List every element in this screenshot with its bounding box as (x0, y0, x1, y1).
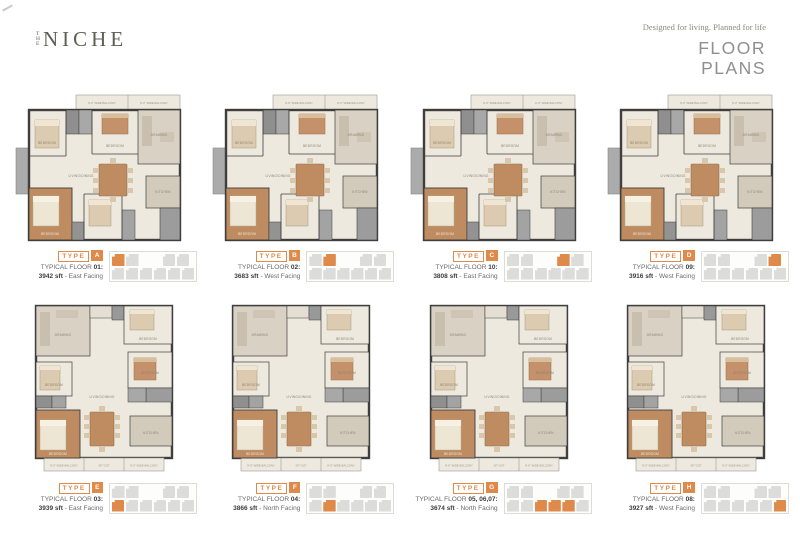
typical-floor-label: TYPICAL FLOOR (41, 264, 92, 271)
floorplan-svg: 9'-0" WIDE BALCONY 9'-0" WIDE BALCONY BE… (409, 92, 589, 248)
room-label: BEDROOM (436, 232, 454, 236)
separator: - (259, 505, 261, 512)
room-label: DRAWING (743, 133, 760, 137)
type-word-label: TYPE (59, 483, 90, 494)
floorplan-cell-type-e: 9'-0" WIDE BALCONY SIT OUT 9'-0" WIDE BA… (10, 300, 198, 514)
typical-floor-value: 02: (291, 264, 300, 271)
dress (644, 396, 658, 408)
typical-floor-value: 03: (94, 496, 103, 503)
typical-floor-label: TYPICAL FLOOR (41, 496, 92, 503)
room-label: BEDROOM (336, 337, 354, 341)
type-word-label: TYPE (650, 251, 681, 262)
key-unit (163, 486, 176, 498)
dining-table (682, 412, 706, 446)
room-label: DRAWING (545, 133, 562, 137)
floorplan-svg: 9'-0" WIDE BALCONY 9'-0" WIDE BALCONY BE… (211, 92, 391, 248)
key-unit (126, 254, 139, 266)
key-unit (177, 254, 190, 266)
floorplan-svg: 9'-0" WIDE BALCONY 9'-0" WIDE BALCONY BE… (14, 92, 194, 248)
balcony-label: 9'-0" WIDE BALCONY (337, 101, 365, 105)
typical-floor-label: TYPICAL FLOOR (238, 264, 289, 271)
floorplan-svg: 9'-0" WIDE BALCONY SIT OUT 9'-0" WIDE BA… (26, 300, 182, 480)
floorplan-caption: TYPE A TYPICAL FLOOR 01: 3942 sft - East… (10, 251, 198, 282)
room-label: BEDROOM (141, 371, 159, 375)
room-label: LIVING/DINING (463, 174, 488, 178)
key-row-top (704, 486, 786, 498)
balcony-label: 9'-0" WIDE BALCONY (247, 464, 275, 468)
room-label: KITCHEN (747, 190, 763, 194)
key-plan (306, 483, 394, 514)
room-label: KITCHEN (341, 431, 357, 435)
key-unit (374, 254, 387, 266)
sofa (648, 310, 670, 318)
balcony-label: 9'-0" WIDE BALCONY (642, 464, 670, 468)
key-plan (504, 251, 592, 282)
key-unit-highlighted (112, 500, 124, 512)
key-unit (760, 268, 772, 280)
floorplan-drawing: 9'-0" WIDE BALCONY 9'-0" WIDE BALCONY BE… (14, 92, 194, 248)
separator: - (459, 273, 461, 280)
room-label: BEDROOM (637, 383, 655, 387)
room-label: LIVING/DINING (287, 395, 312, 399)
dress (325, 388, 343, 402)
toilet (36, 396, 52, 408)
room-label: KITCHEN (538, 431, 554, 435)
area-facing-line: 3866 sft - North Facing (208, 504, 300, 513)
key-unit (507, 500, 519, 512)
key-row-bottom (704, 500, 786, 512)
typical-floor-label: TYPICAL FLOOR (633, 496, 684, 503)
room-label: KITCHEN (143, 431, 159, 435)
key-unit (718, 486, 731, 498)
room-label: BEDROOM (246, 452, 264, 456)
key-unit-highlighted (562, 500, 574, 512)
area-value: 3674 sft (430, 505, 454, 512)
area-facing-line: 3808 sft - East Facing (406, 272, 498, 281)
toilet (66, 110, 79, 134)
balcony-label: 9'-0" WIDE BALCONY (535, 101, 563, 105)
floorplan-cell-type-c: 9'-0" WIDE BALCONY 9'-0" WIDE BALCONY BE… (405, 92, 593, 282)
key-unit (126, 268, 138, 280)
room-label: KITCHEN (155, 190, 171, 194)
key-gap (535, 254, 556, 266)
floorplan-drawing: 9'-0" WIDE BALCONY 9'-0" WIDE BALCONY BE… (211, 92, 391, 248)
key-unit (732, 500, 744, 512)
type-letter-badge: E (92, 482, 103, 493)
sofa (537, 116, 547, 146)
balcony-label: 9'-0" WIDE BALCONY (732, 101, 760, 105)
facing-value: West Facing (264, 273, 300, 280)
key-unit (112, 268, 124, 280)
dining-table (494, 164, 522, 196)
key-plan (306, 251, 394, 282)
balcony-label: 9'-0" WIDE BALCONY (483, 101, 511, 105)
key-plan (109, 251, 197, 282)
sofa (339, 116, 349, 146)
typical-floor-value: 09: (686, 264, 695, 271)
sofa (40, 312, 50, 346)
toilet (146, 388, 172, 402)
floorplan-svg: 9'-0" WIDE BALCONY 9'-0" WIDE BALCONY BE… (606, 92, 786, 248)
type-badge: TYPE A (58, 251, 103, 262)
side-balcony (411, 148, 424, 194)
facing-value: East Facing (463, 273, 497, 280)
corner-mark (2, 5, 13, 12)
type-letter-badge: G (486, 482, 498, 493)
key-unit (182, 268, 194, 280)
key-unit-highlighted (548, 500, 560, 512)
toilet (319, 210, 332, 240)
room-label: DRAWING (348, 133, 365, 137)
key-unit (374, 486, 387, 498)
dress (447, 396, 461, 408)
side-balcony (213, 148, 226, 194)
key-unit (365, 268, 377, 280)
floorplan-cell-type-g: 9'-0" WIDE BALCONY SIT OUT 9'-0" WIDE BA… (405, 300, 593, 514)
key-unit (746, 268, 758, 280)
key-unit (309, 268, 321, 280)
facing-value: West Facing (659, 505, 695, 512)
key-gap (732, 254, 753, 266)
toilet (122, 210, 135, 240)
typical-floor-label: TYPICAL FLOOR (633, 264, 684, 271)
key-unit (140, 500, 152, 512)
key-unit (746, 500, 758, 512)
key-row-bottom (507, 268, 589, 280)
key-unit (365, 500, 377, 512)
room-label: BEDROOM (501, 144, 519, 148)
type-badge: TYPE B (256, 251, 301, 262)
key-unit (704, 500, 716, 512)
room-label: LIVING/DINING (681, 395, 706, 399)
dress (523, 388, 541, 402)
page-title-line1: FLOOR (643, 39, 766, 59)
utility (357, 208, 377, 240)
key-row-bottom (112, 500, 194, 512)
floorplan-caption: TYPE G TYPICAL FLOOR 05, 06,07: 3674 sft… (405, 483, 593, 514)
room-label: BEDROOM (338, 371, 356, 375)
utility (555, 208, 575, 240)
key-unit (521, 486, 534, 498)
type-word-label: TYPE (256, 483, 287, 494)
sofa (237, 312, 247, 346)
key-unit (140, 268, 152, 280)
key-unit (323, 486, 336, 498)
floorplan-drawing: 9'-0" WIDE BALCONY SIT OUT 9'-0" WIDE BA… (26, 300, 182, 480)
room-label: BEDROOM (731, 337, 749, 341)
sofa (253, 310, 275, 318)
key-unit (774, 268, 786, 280)
sitout-label: SIT OUT (99, 464, 110, 468)
toilet (72, 222, 84, 240)
floorplan-svg: 9'-0" WIDE BALCONY SIT OUT 9'-0" WIDE BA… (421, 300, 577, 480)
room-label: BEDROOM (630, 141, 648, 145)
key-unit (521, 500, 533, 512)
room-label: BEDROOM (106, 144, 124, 148)
foyer (90, 306, 112, 318)
key-unit (576, 268, 588, 280)
room-label: DRAWING (252, 333, 269, 337)
dining-table (691, 164, 719, 196)
toilet (467, 222, 479, 240)
key-unit (309, 486, 322, 498)
key-row-top (704, 254, 786, 266)
type-letter-badge: H (683, 482, 695, 493)
key-unit-highlighted (557, 254, 570, 266)
floorplan-caption: TYPE B TYPICAL FLOOR 02: 3683 sft - West… (207, 251, 395, 282)
floorplan-cell-type-a: 9'-0" WIDE BALCONY 9'-0" WIDE BALCONY BE… (10, 92, 198, 282)
key-unit (351, 500, 363, 512)
typical-floor-line: TYPICAL FLOOR 05, 06,07: (406, 495, 498, 504)
typical-floor-value: 08: (686, 496, 695, 503)
separator: - (655, 505, 657, 512)
separator: - (456, 505, 458, 512)
room-label: BEDROOM (641, 452, 659, 456)
key-unit (704, 254, 717, 266)
typical-floor-line: TYPICAL FLOOR 09: (603, 263, 695, 272)
toilet (309, 306, 321, 320)
key-unit (168, 268, 180, 280)
typical-floor-value: 04: (291, 496, 300, 503)
dining-table (485, 412, 509, 446)
brand-logo-the: THE (36, 32, 41, 48)
floorplan-caption: TYPE H TYPICAL FLOOR 08: 3927 sft - West… (602, 483, 790, 514)
typical-floor-value: 10: (488, 264, 497, 271)
room-label: BEDROOM (139, 337, 157, 341)
floorplan-drawing: 9'-0" WIDE BALCONY SIT OUT 9'-0" WIDE BA… (618, 300, 774, 480)
room-label: KITCHEN (550, 190, 566, 194)
key-unit (562, 268, 574, 280)
balcony-label: 9'-0" WIDE BALCONY (722, 464, 750, 468)
floorplan-cell-type-f: 9'-0" WIDE BALCONY SIT OUT 9'-0" WIDE BA… (207, 300, 395, 514)
brand-logo-name: NICHE (43, 27, 127, 52)
balcony-label: 9'-0" WIDE BALCONY (680, 101, 708, 105)
key-row-top (112, 486, 194, 498)
toilet (431, 396, 447, 408)
toilet (628, 396, 644, 408)
type-badge: TYPE C (453, 251, 498, 262)
key-unit (360, 486, 373, 498)
key-unit (168, 500, 180, 512)
sofa (632, 312, 642, 346)
area-facing-line: 3916 sft - West Facing (603, 272, 695, 281)
room-label: BEDROOM (733, 371, 751, 375)
caption-text: TYPE F TYPICAL FLOOR 04: 3866 sft - Nort… (208, 483, 300, 514)
key-unit-highlighted (112, 254, 125, 266)
area-facing-line: 3683 sft - West Facing (208, 272, 300, 281)
sofa (734, 116, 744, 146)
toilet (738, 388, 764, 402)
floorplan-cell-type-b: 9'-0" WIDE BALCONY 9'-0" WIDE BALCONY BE… (207, 92, 395, 282)
key-row-bottom (112, 268, 194, 280)
toilet (112, 306, 124, 320)
room-label: LIVING/DINING (484, 395, 509, 399)
key-unit (557, 486, 570, 498)
key-gap (140, 486, 161, 498)
area-facing-line: 3927 sft - West Facing (603, 504, 695, 513)
room-label: LIVING/DINING (660, 174, 685, 178)
facing-value: East Facing (69, 273, 103, 280)
caption-text: TYPE E TYPICAL FLOOR 03: 3939 sft - East… (11, 483, 103, 514)
key-unit (507, 268, 519, 280)
area-facing-line: 3674 sft - North Facing (406, 504, 498, 513)
toilet (664, 222, 676, 240)
balcony-label: 9'-0" WIDE BALCONY (50, 464, 78, 468)
room-label: KITCHEN (353, 190, 369, 194)
floorplan-caption: TYPE E TYPICAL FLOOR 03: 3939 sft - East… (10, 483, 198, 514)
sitout-label: SIT OUT (690, 464, 701, 468)
area-value: 3866 sft (233, 505, 257, 512)
key-unit (754, 254, 767, 266)
sofa (56, 310, 78, 318)
key-row-bottom (507, 500, 589, 512)
side-balcony (608, 148, 621, 194)
room-label: BEDROOM (235, 141, 253, 145)
foyer (485, 306, 507, 318)
key-unit (732, 268, 744, 280)
key-unit-highlighted (535, 500, 547, 512)
type-word-label: TYPE (650, 483, 681, 494)
dress (128, 388, 146, 402)
room-label: DRAWING (151, 133, 168, 137)
key-unit (521, 268, 533, 280)
caption-text: TYPE H TYPICAL FLOOR 08: 3927 sft - West… (603, 483, 695, 514)
key-plan (109, 483, 197, 514)
key-unit (521, 254, 534, 266)
dining-table (287, 412, 311, 446)
dress (249, 396, 263, 408)
key-unit (379, 268, 391, 280)
toilet (343, 388, 369, 402)
room-label: BEDROOM (633, 232, 651, 236)
key-unit (535, 268, 547, 280)
caption-text: TYPE B TYPICAL FLOOR 02: 3683 sft - West… (208, 251, 300, 282)
room-label: BEDROOM (303, 144, 321, 148)
room-label: LIVING/DINING (68, 174, 93, 178)
toilet (704, 306, 716, 320)
area-facing-line: 3942 sft - East Facing (11, 272, 103, 281)
plans-row-top: 9'-0" WIDE BALCONY 9'-0" WIDE BALCONY BE… (10, 92, 790, 282)
room-label: DRAWING (449, 333, 466, 337)
key-unit (718, 500, 730, 512)
utility (752, 208, 772, 240)
sofa (435, 312, 445, 346)
key-plan (701, 251, 789, 282)
key-unit (351, 268, 363, 280)
brochure-page: THE NICHE Designed for living. Planned f… (0, 0, 800, 545)
room-label: DRAWING (55, 333, 72, 337)
typical-floor-line: TYPICAL FLOOR 04: (208, 495, 300, 504)
dress (720, 388, 738, 402)
dress (52, 396, 66, 408)
floorplans-grid: 9'-0" WIDE BALCONY 9'-0" WIDE BALCONY BE… (0, 88, 800, 514)
area-value: 3939 sft (39, 505, 63, 512)
room-label: BEDROOM (433, 141, 451, 145)
key-unit (126, 500, 138, 512)
typical-floor-line: TYPICAL FLOOR 03: (11, 495, 103, 504)
key-unit (718, 254, 731, 266)
key-unit (718, 268, 730, 280)
type-badge: TYPE G (453, 483, 498, 494)
dining-table (90, 412, 114, 446)
key-unit (112, 486, 125, 498)
key-gap (337, 486, 358, 498)
key-unit (337, 268, 349, 280)
floorplan-drawing: 9'-0" WIDE BALCONY 9'-0" WIDE BALCONY BE… (409, 92, 589, 248)
balcony-label: 9'-0" WIDE BALCONY (327, 464, 355, 468)
key-gap (732, 486, 753, 498)
key-unit (126, 486, 139, 498)
typical-floor-label: TYPICAL FLOOR (416, 496, 467, 503)
floorplan-svg: 9'-0" WIDE BALCONY SIT OUT 9'-0" WIDE BA… (618, 300, 774, 480)
sitout-label: SIT OUT (296, 464, 307, 468)
balcony-label: 9'-0" WIDE BALCONY (445, 464, 473, 468)
balcony-label: 9'-0" WIDE BALCONY (140, 101, 168, 105)
sofa (451, 310, 473, 318)
key-row-top (309, 486, 391, 498)
area-value: 3683 sft (234, 273, 258, 280)
key-unit-highlighted (774, 500, 786, 512)
caption-text: TYPE G TYPICAL FLOOR 05, 06,07: 3674 sft… (406, 483, 498, 514)
type-badge: TYPE E (59, 483, 103, 494)
type-letter-badge: C (486, 250, 498, 261)
dining-table (99, 164, 127, 196)
key-row-bottom (309, 268, 391, 280)
key-row-top (112, 254, 194, 266)
key-unit-highlighted (323, 254, 336, 266)
area-value: 3942 sft (39, 273, 63, 280)
room-label: BEDROOM (534, 337, 552, 341)
dress (474, 110, 487, 134)
room-label: BEDROOM (242, 383, 260, 387)
key-unit (768, 486, 781, 498)
key-unit (182, 500, 194, 512)
key-unit (507, 254, 520, 266)
key-unit (754, 486, 767, 498)
floorplan-drawing: 9'-0" WIDE BALCONY SIT OUT 9'-0" WIDE BA… (223, 300, 379, 480)
facing-value: East Facing (69, 505, 103, 512)
tagline: Designed for living. Planned for life (643, 22, 766, 32)
area-value: 3927 sft (629, 505, 653, 512)
key-unit (548, 268, 560, 280)
page-title: FLOOR PLANS (643, 39, 766, 78)
room-label: BEDROOM (444, 452, 462, 456)
key-plan (504, 483, 592, 514)
dining-table (296, 164, 324, 196)
key-unit (337, 500, 349, 512)
page-title-line2: PLANS (643, 59, 766, 79)
room-label: BEDROOM (238, 232, 256, 236)
key-unit (154, 268, 166, 280)
type-badge: TYPE F (256, 483, 300, 494)
balcony-label: 9'-0" WIDE BALCONY (525, 464, 553, 468)
toilet (714, 210, 727, 240)
typical-floor-label: TYPICAL FLOOR (238, 496, 289, 503)
balcony-label: 9'-0" WIDE BALCONY (88, 101, 116, 105)
foyer (287, 306, 309, 318)
room-label: BEDROOM (536, 371, 554, 375)
typical-floor-line: TYPICAL FLOOR 01: (11, 263, 103, 272)
key-unit (309, 500, 321, 512)
key-row-top (507, 486, 589, 498)
key-row-bottom (704, 268, 786, 280)
typical-floor-line: TYPICAL FLOOR 02: (208, 263, 300, 272)
key-row-top (309, 254, 391, 266)
room-label: BEDROOM (45, 383, 63, 387)
toilet (517, 210, 530, 240)
balcony-label: 9'-0" WIDE BALCONY (285, 101, 313, 105)
floorplan-caption: TYPE D TYPICAL FLOOR 09: 3916 sft - West… (602, 251, 790, 282)
